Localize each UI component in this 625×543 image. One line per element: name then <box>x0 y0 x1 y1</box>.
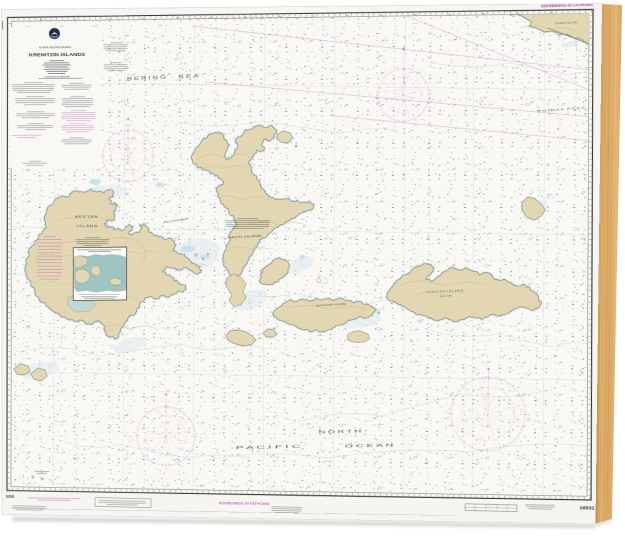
svg-text:I S L A N D: I S L A N D <box>77 224 98 228</box>
svg-text:16531: 16531 <box>2 21 4 31</box>
svg-text:S E A: S E A <box>178 73 200 80</box>
svg-text:ALASKA ALEUTIAN ISLANDS: ALASKA ALEUTIAN ISLANDS <box>39 46 71 49</box>
svg-text:16531: 16531 <box>5 495 14 499</box>
svg-text:(see note): (see note) <box>440 294 453 298</box>
svg-text:KRENITZIN ISLANDS: KRENITZIN ISLANDS <box>29 52 86 59</box>
svg-text:SOUNDINGS IN FATHOMS: SOUNDINGS IN FATHOMS <box>219 501 271 506</box>
svg-text:O C E A N: O C E A N <box>345 442 394 448</box>
svg-text:N O R T H: N O R T H <box>319 428 362 434</box>
svg-text:16531: 16531 <box>579 505 595 510</box>
svg-text:A K U T A N: A K U T A N <box>75 215 98 219</box>
